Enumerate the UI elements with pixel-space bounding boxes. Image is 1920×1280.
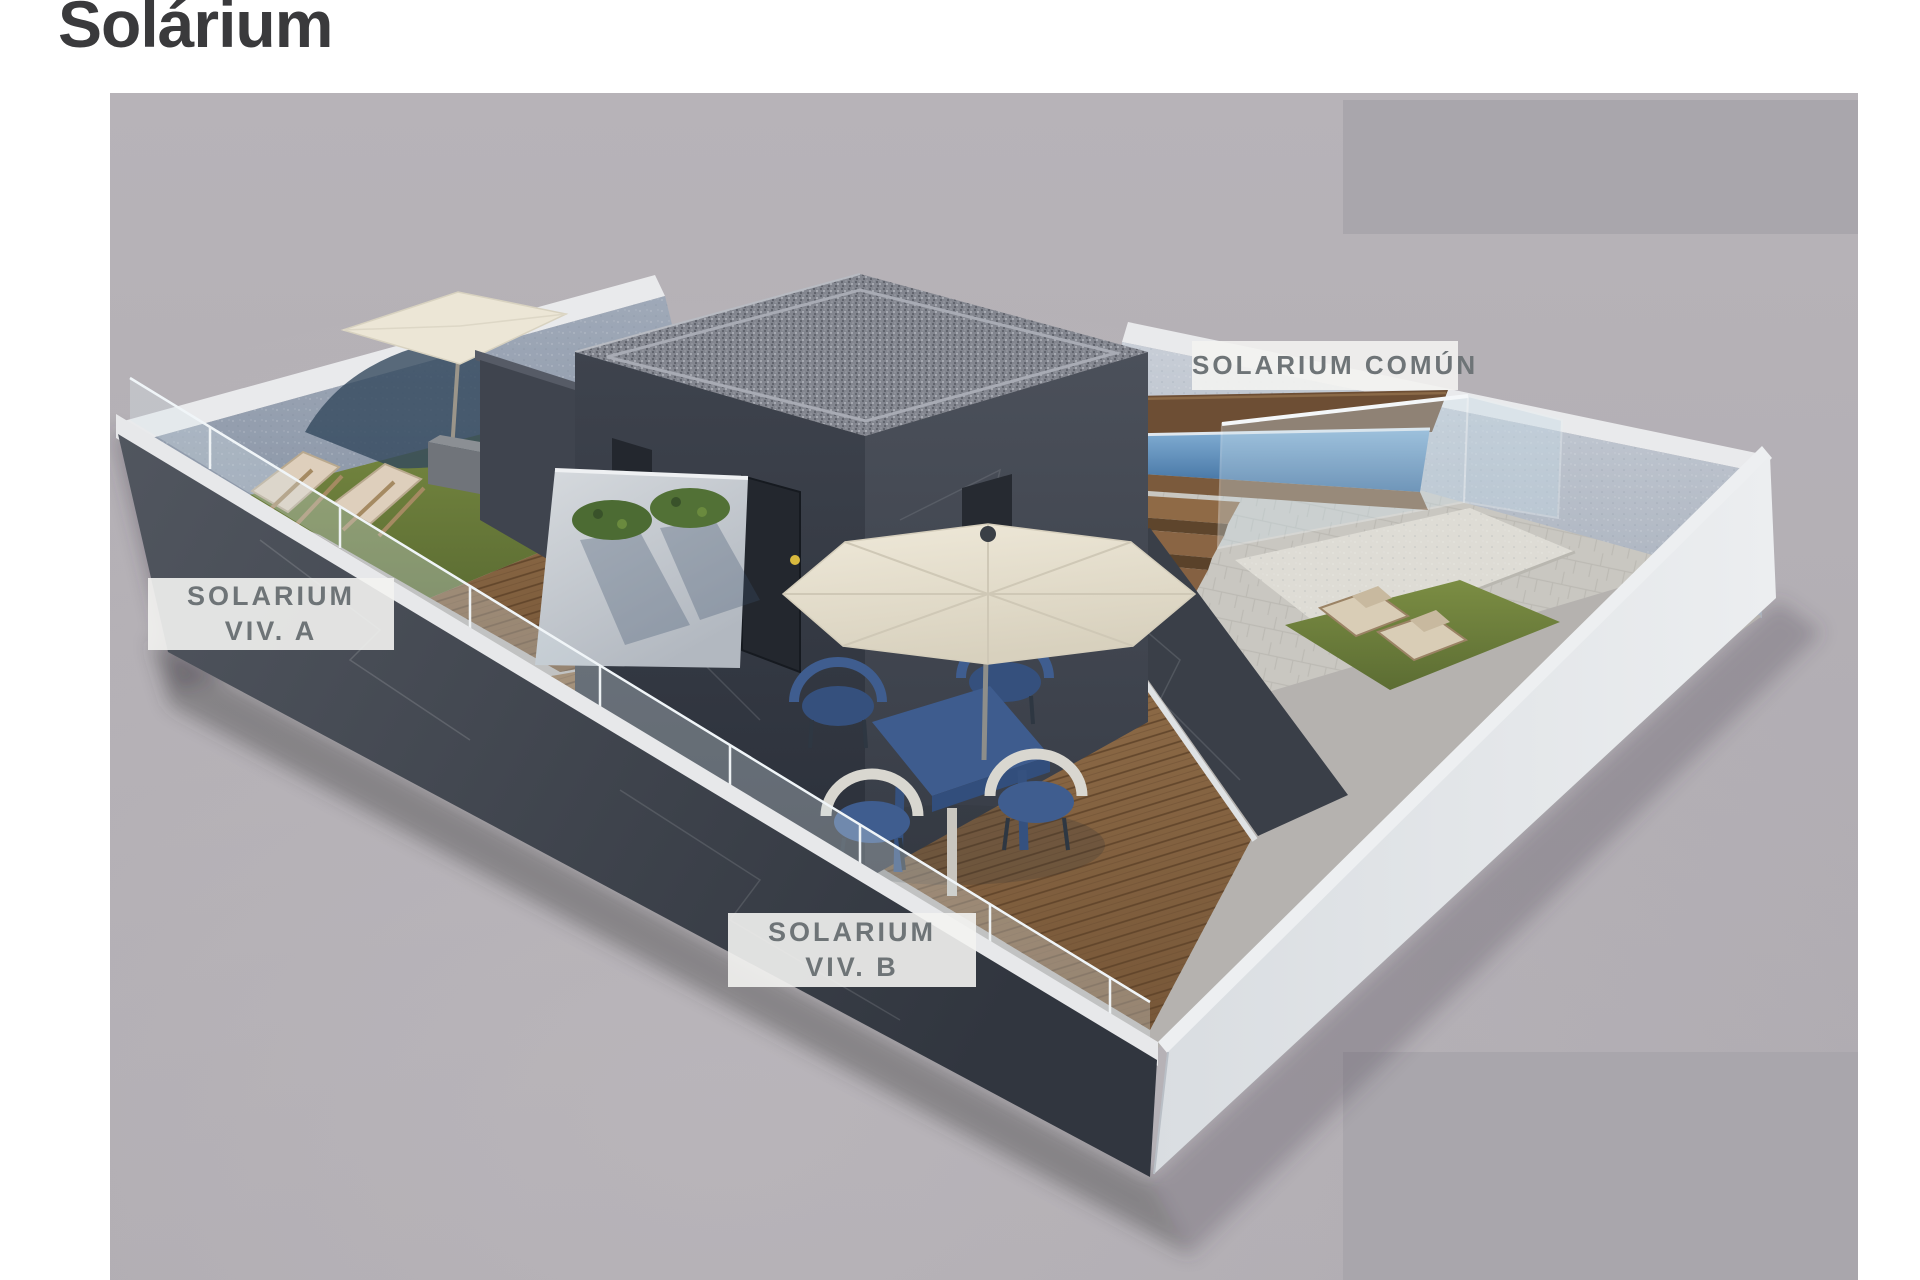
label-line: SOLARIUM: [148, 579, 394, 614]
divider-planter-wall: [535, 470, 760, 668]
solarium-page: Solárium: [0, 0, 1920, 1280]
page-title: Solárium: [58, 0, 332, 62]
render-image: [110, 93, 1858, 1280]
label-solarium-viv-a: SOLARIUM VIV. A: [148, 578, 394, 650]
wall-light: [790, 555, 800, 565]
label-line: VIV. A: [148, 614, 394, 649]
label-solarium-viv-b: SOLARIUM VIV. B: [728, 913, 976, 987]
parasol-knob: [980, 526, 996, 542]
label-line: SOLARIUM COMÚN: [1192, 348, 1458, 383]
label-line: VIV. B: [728, 950, 976, 985]
building-door: [742, 476, 800, 672]
label-line: SOLARIUM: [728, 915, 976, 950]
solarium-3d-render: [110, 93, 1858, 1280]
label-solarium-comun: SOLARIUM COMÚN: [1192, 341, 1458, 390]
octagonal-parasol: [783, 524, 1195, 664]
redaction-block-bottom-right: [1343, 1052, 1858, 1280]
redaction-block-top-right: [1343, 100, 1858, 234]
